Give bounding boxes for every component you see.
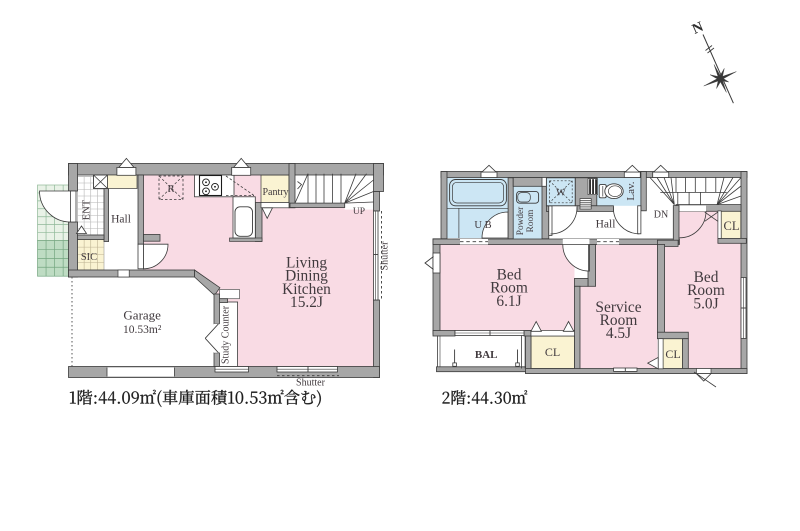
svg-text:Hall: Hall: [111, 214, 131, 226]
svg-text:DN: DN: [654, 210, 668, 221]
svg-text:PowderRoom: PowderRoom: [516, 206, 536, 235]
svg-text:Hall: Hall: [596, 219, 616, 231]
svg-text:Garage: Garage: [123, 308, 161, 323]
svg-text:CL: CL: [665, 347, 680, 361]
svg-text:ENT: ENT: [82, 199, 93, 220]
svg-text:U B: U B: [474, 220, 491, 231]
svg-text:4.5J: 4.5J: [606, 325, 631, 342]
svg-text:Shutter: Shutter: [296, 378, 326, 389]
svg-text:10.53m²: 10.53m²: [123, 324, 162, 336]
svg-text:CL: CL: [724, 219, 740, 233]
svg-text:SIC: SIC: [81, 252, 97, 263]
svg-text:W: W: [556, 188, 566, 199]
svg-text:Pantry: Pantry: [262, 187, 288, 198]
svg-text:Shutter: Shutter: [380, 241, 391, 271]
svg-text:Study Counter: Study Counter: [221, 305, 232, 364]
svg-text:Lav.: Lav.: [625, 181, 637, 200]
svg-text:CL: CL: [545, 345, 560, 359]
svg-text:5.0J: 5.0J: [693, 295, 718, 312]
svg-text:UP: UP: [353, 207, 365, 217]
svg-text:6.1J: 6.1J: [496, 293, 521, 310]
svg-text:R: R: [167, 184, 174, 195]
svg-text:BAL: BAL: [475, 349, 498, 361]
svg-text:15.2J: 15.2J: [290, 294, 323, 311]
